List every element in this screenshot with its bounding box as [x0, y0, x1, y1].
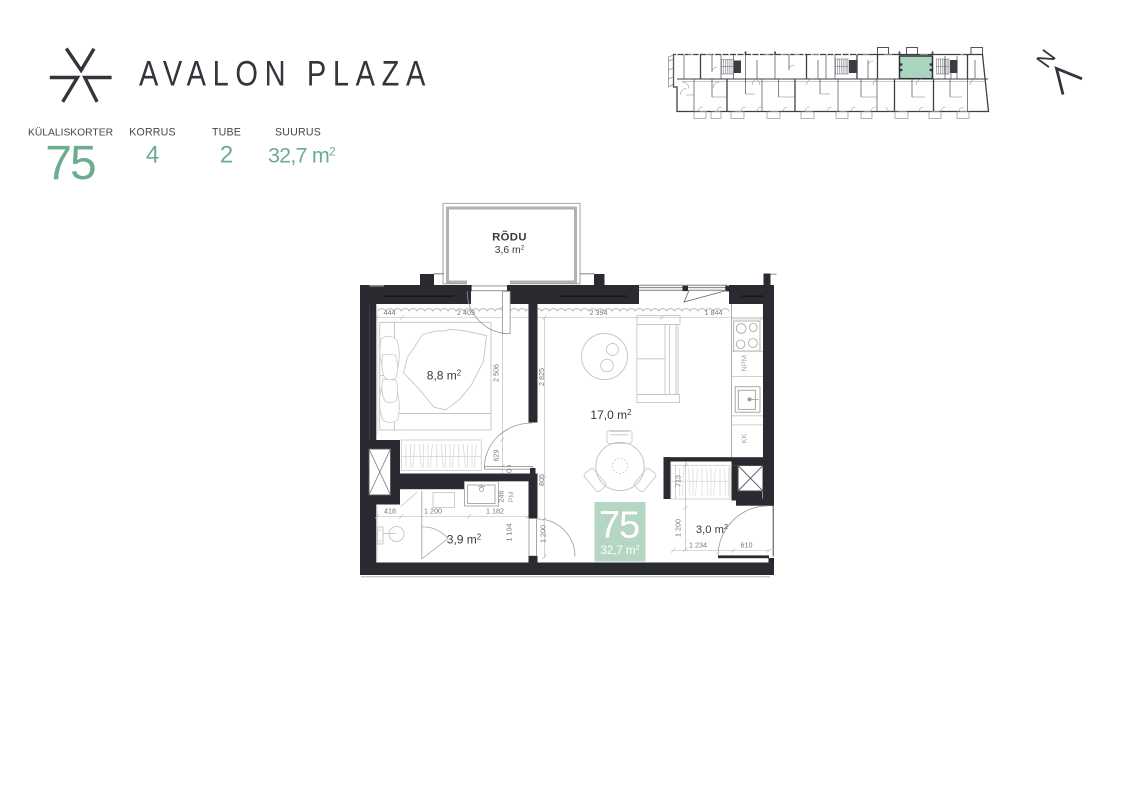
svg-text:75: 75	[599, 505, 639, 547]
svg-text:1 200: 1 200	[424, 507, 442, 516]
svg-text:NPM: NPM	[740, 355, 749, 372]
svg-text:AVALON PLAZA: AVALON PLAZA	[139, 55, 432, 94]
svg-text:2 394: 2 394	[590, 308, 608, 317]
svg-text:3,6 m2: 3,6 m2	[495, 244, 525, 256]
svg-text:2 825: 2 825	[537, 368, 546, 386]
svg-text:2: 2	[220, 142, 233, 169]
svg-text:610: 610	[741, 541, 753, 550]
svg-text:RÕDU: RÕDU	[492, 231, 527, 244]
svg-text:SUURUS: SUURUS	[275, 127, 321, 139]
svg-text:2 506: 2 506	[492, 364, 501, 382]
svg-text:629: 629	[492, 450, 501, 462]
svg-text:246: 246	[497, 491, 506, 503]
svg-text:1 200: 1 200	[674, 519, 683, 537]
svg-text:713: 713	[674, 475, 683, 487]
svg-text:1 200: 1 200	[539, 525, 548, 543]
svg-text:805: 805	[537, 474, 546, 486]
svg-text:17,0 m2: 17,0 m2	[590, 408, 632, 422]
svg-text:1 234: 1 234	[689, 541, 707, 550]
svg-text:32,7 m2: 32,7 m2	[268, 144, 336, 168]
svg-text:8,8 m2: 8,8 m2	[427, 369, 462, 383]
svg-text:KK: KK	[740, 433, 749, 443]
svg-text:1 182: 1 182	[486, 507, 504, 516]
svg-text:75: 75	[45, 137, 95, 190]
svg-text:PM: PM	[507, 491, 516, 502]
svg-text:KORRUS: KORRUS	[129, 127, 176, 139]
svg-text:1 844: 1 844	[705, 308, 723, 317]
svg-text:1 104: 1 104	[505, 524, 514, 542]
svg-text:TUBE: TUBE	[212, 127, 241, 139]
svg-text:3,9 m2: 3,9 m2	[447, 533, 482, 547]
svg-text:32,7 m2: 32,7 m2	[600, 545, 639, 557]
svg-text:4: 4	[146, 142, 159, 169]
svg-text:418: 418	[384, 507, 396, 516]
svg-text:444: 444	[384, 308, 396, 317]
